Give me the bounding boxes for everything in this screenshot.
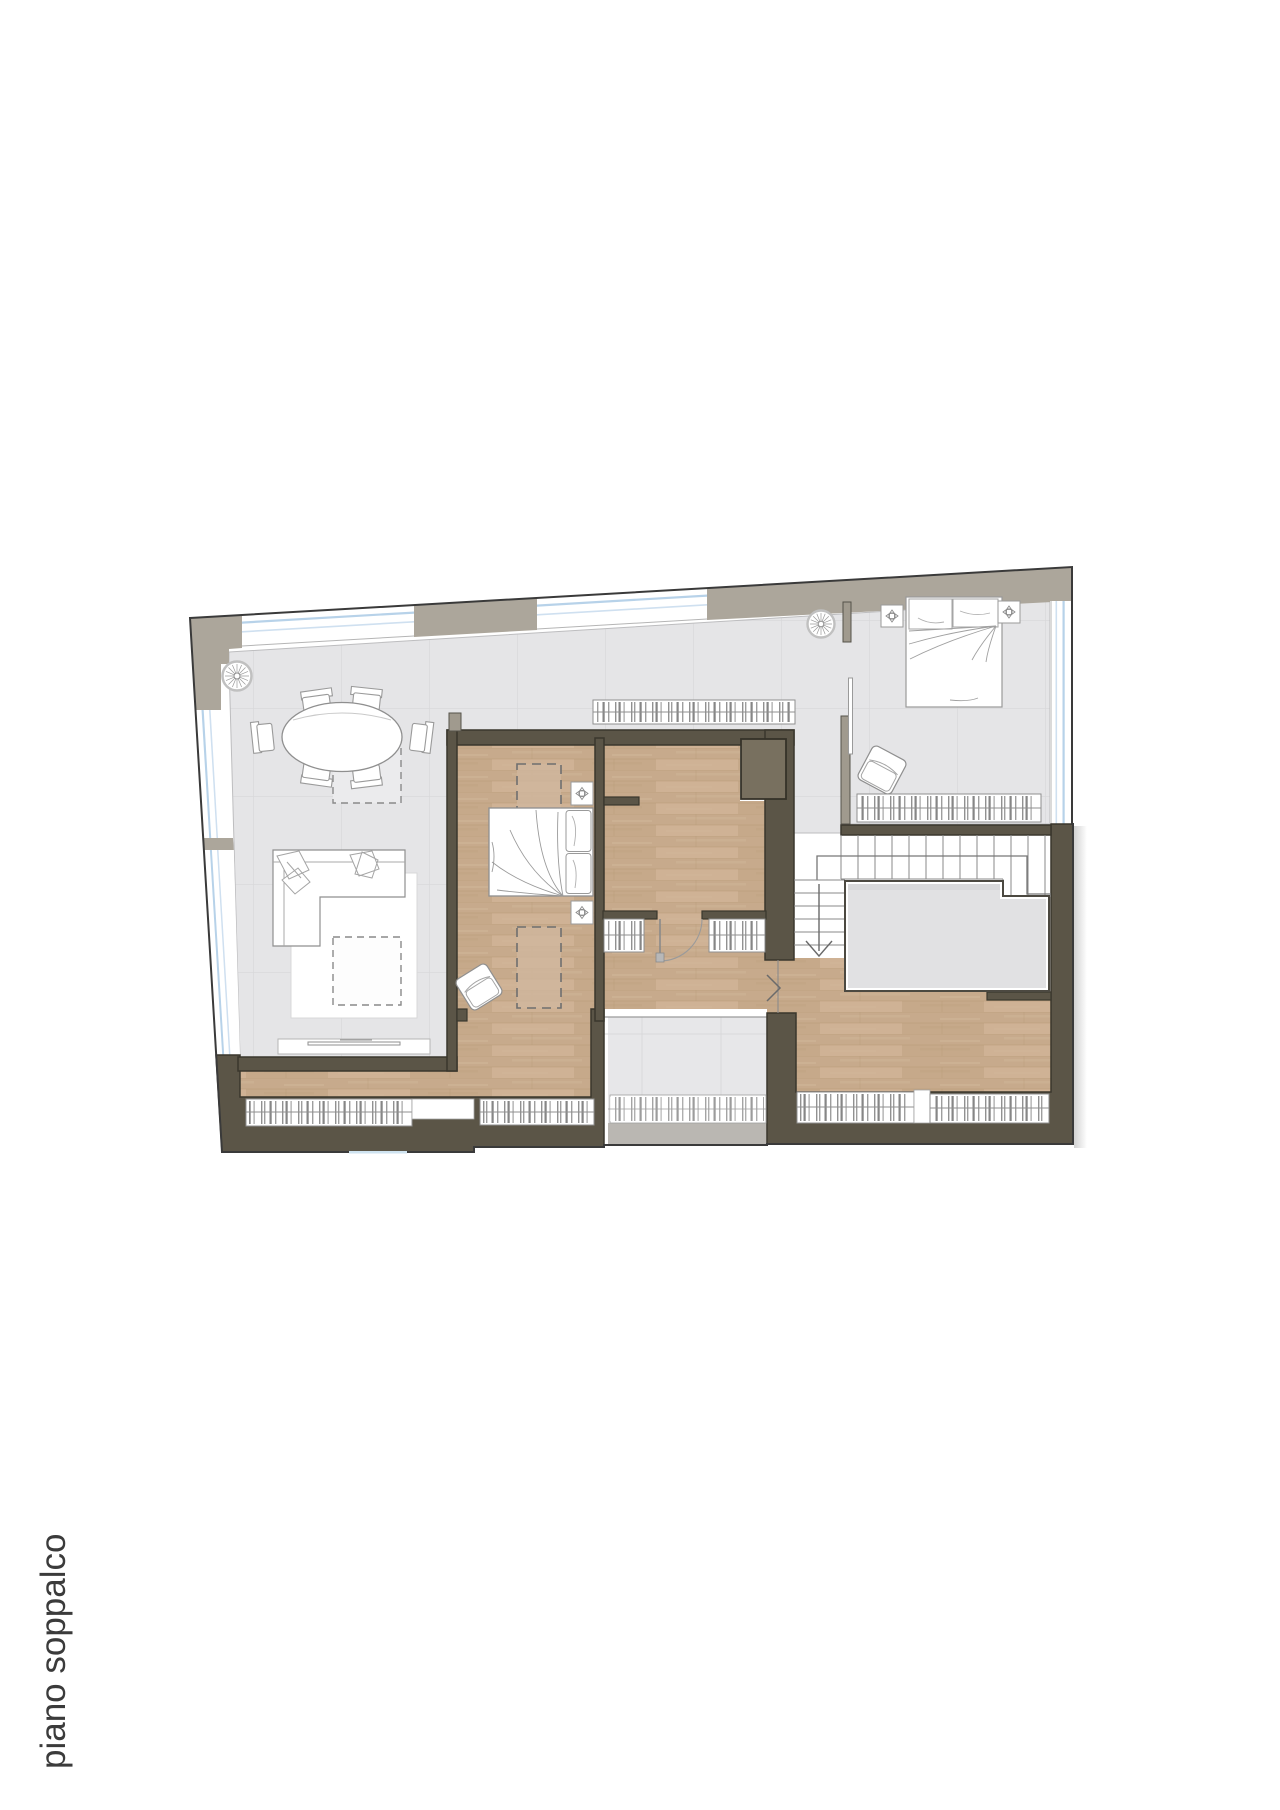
svg-text:piano soppalco: piano soppalco (34, 1534, 73, 1769)
